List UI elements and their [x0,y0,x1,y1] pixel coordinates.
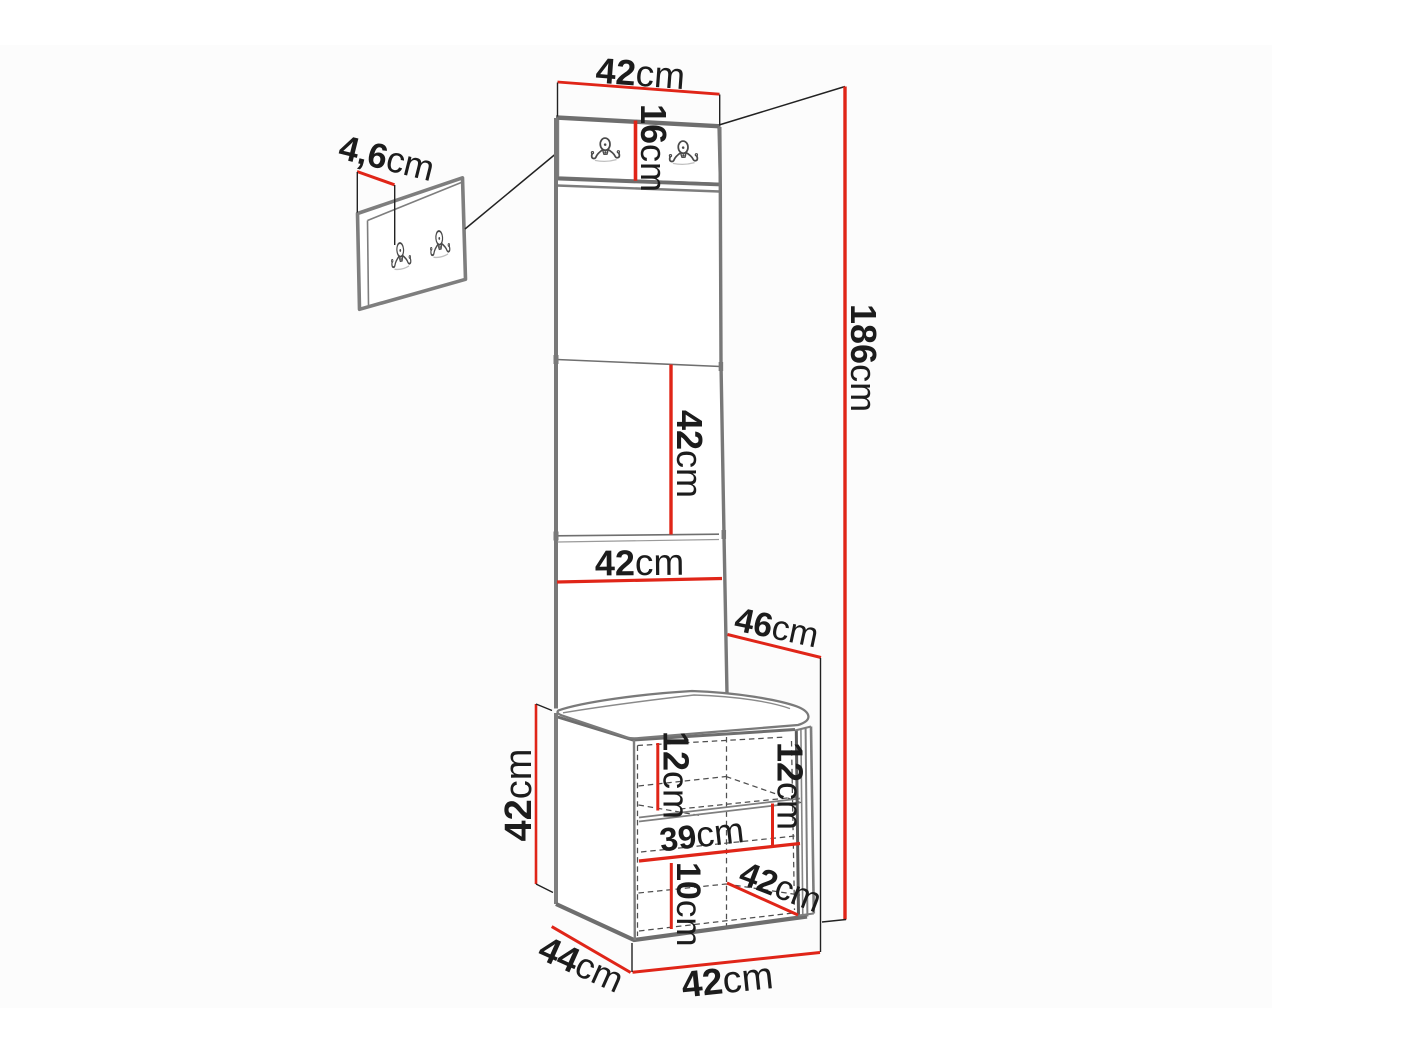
svg-text:42cm: 42cm [595,542,685,584]
svg-text:12cm: 12cm [656,731,697,819]
svg-text:42cm: 42cm [669,410,710,498]
svg-text:186cm: 186cm [843,304,884,412]
svg-text:16cm: 16cm [633,104,674,192]
svg-text:42cm: 42cm [594,50,686,98]
svg-text:42cm: 42cm [498,749,540,842]
svg-text:10cm: 10cm [669,862,708,946]
svg-text:12cm: 12cm [770,742,811,830]
